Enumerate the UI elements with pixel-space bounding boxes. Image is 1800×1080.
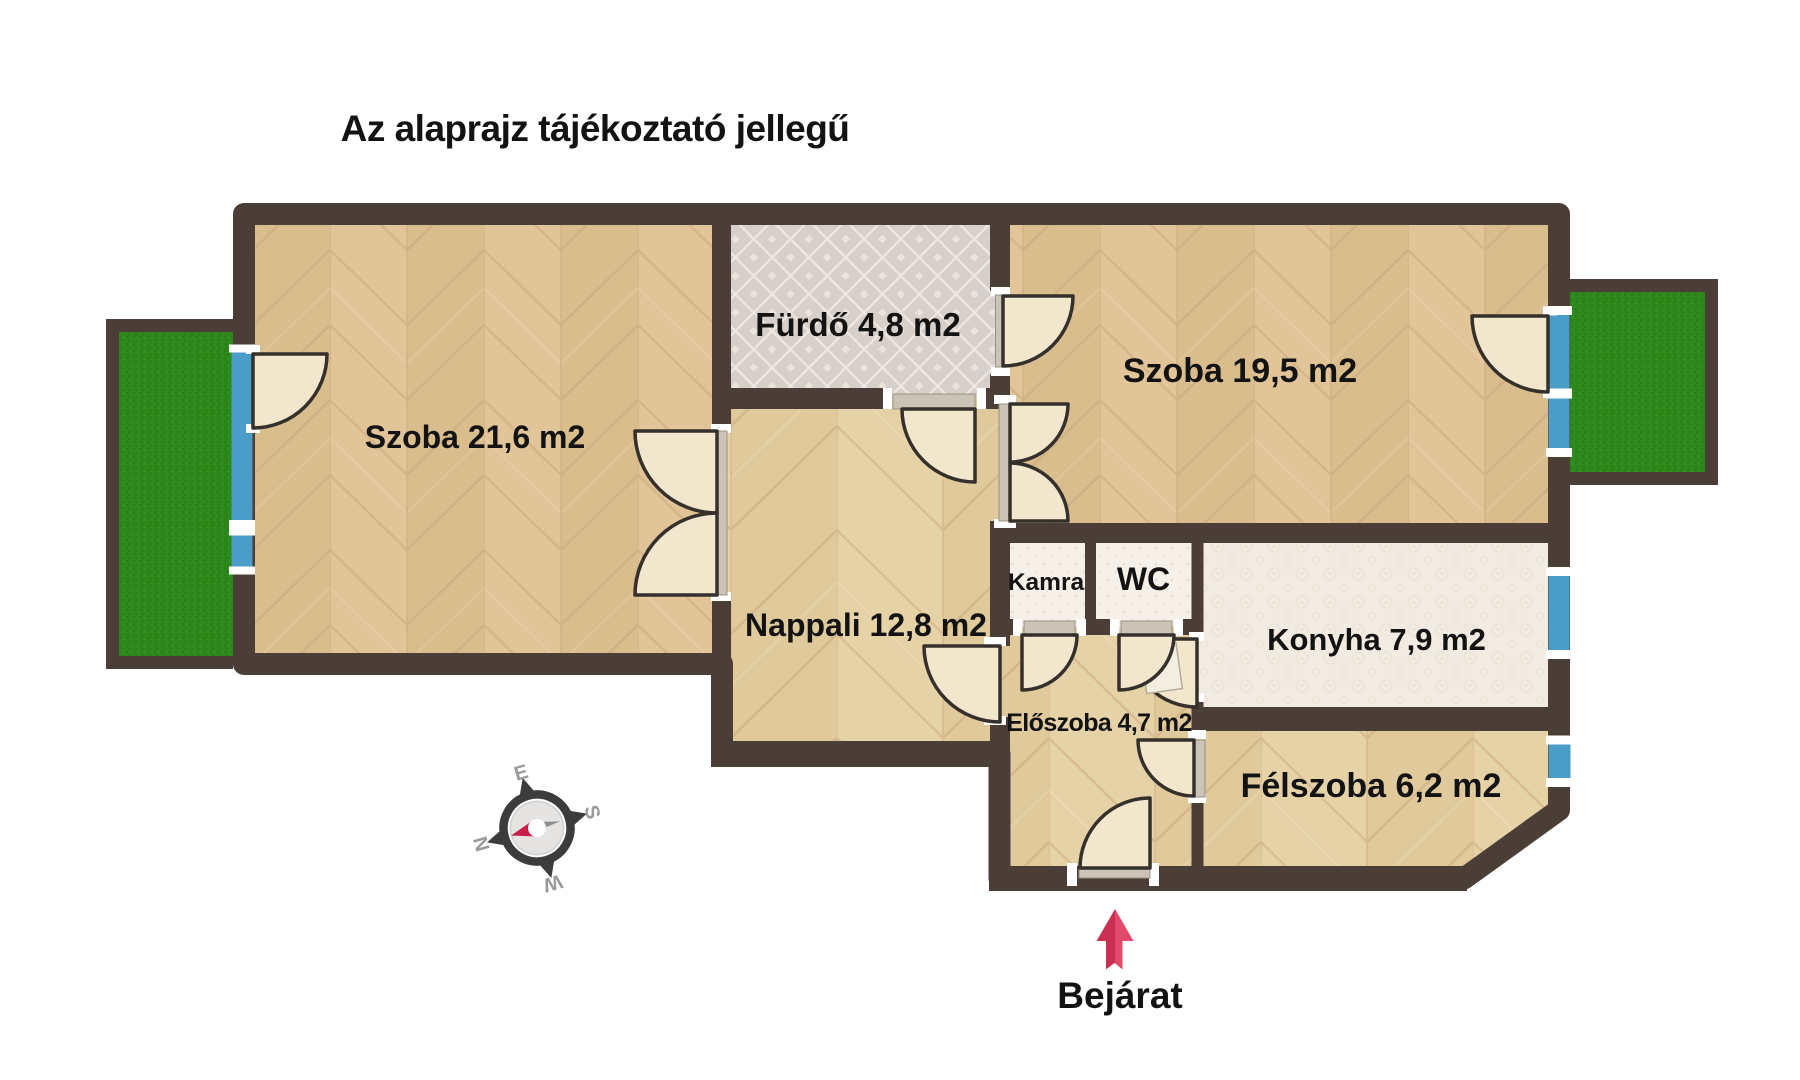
svg-text:Szoba 21,6 m2: Szoba 21,6 m2: [365, 419, 586, 455]
svg-text:Fürdő 4,8 m2: Fürdő 4,8 m2: [755, 306, 960, 343]
svg-text:Előszoba 4,7 m2: Előszoba 4,7 m2: [1006, 709, 1192, 737]
svg-text:WC: WC: [1117, 561, 1170, 597]
svg-text:Bejárat: Bejárat: [1057, 975, 1182, 1016]
svg-text:Szoba 19,5 m2: Szoba 19,5 m2: [1123, 352, 1357, 390]
svg-text:Az alaprajz tájékoztató jelleg: Az alaprajz tájékoztató jellegű: [341, 108, 850, 149]
svg-text:Félszoba 6,2 m2: Félszoba 6,2 m2: [1241, 767, 1502, 805]
svg-text:Kamra: Kamra: [1008, 569, 1085, 596]
svg-text:Nappali 12,8 m2: Nappali 12,8 m2: [745, 607, 987, 643]
svg-text:Konyha 7,9 m2: Konyha 7,9 m2: [1267, 622, 1486, 657]
